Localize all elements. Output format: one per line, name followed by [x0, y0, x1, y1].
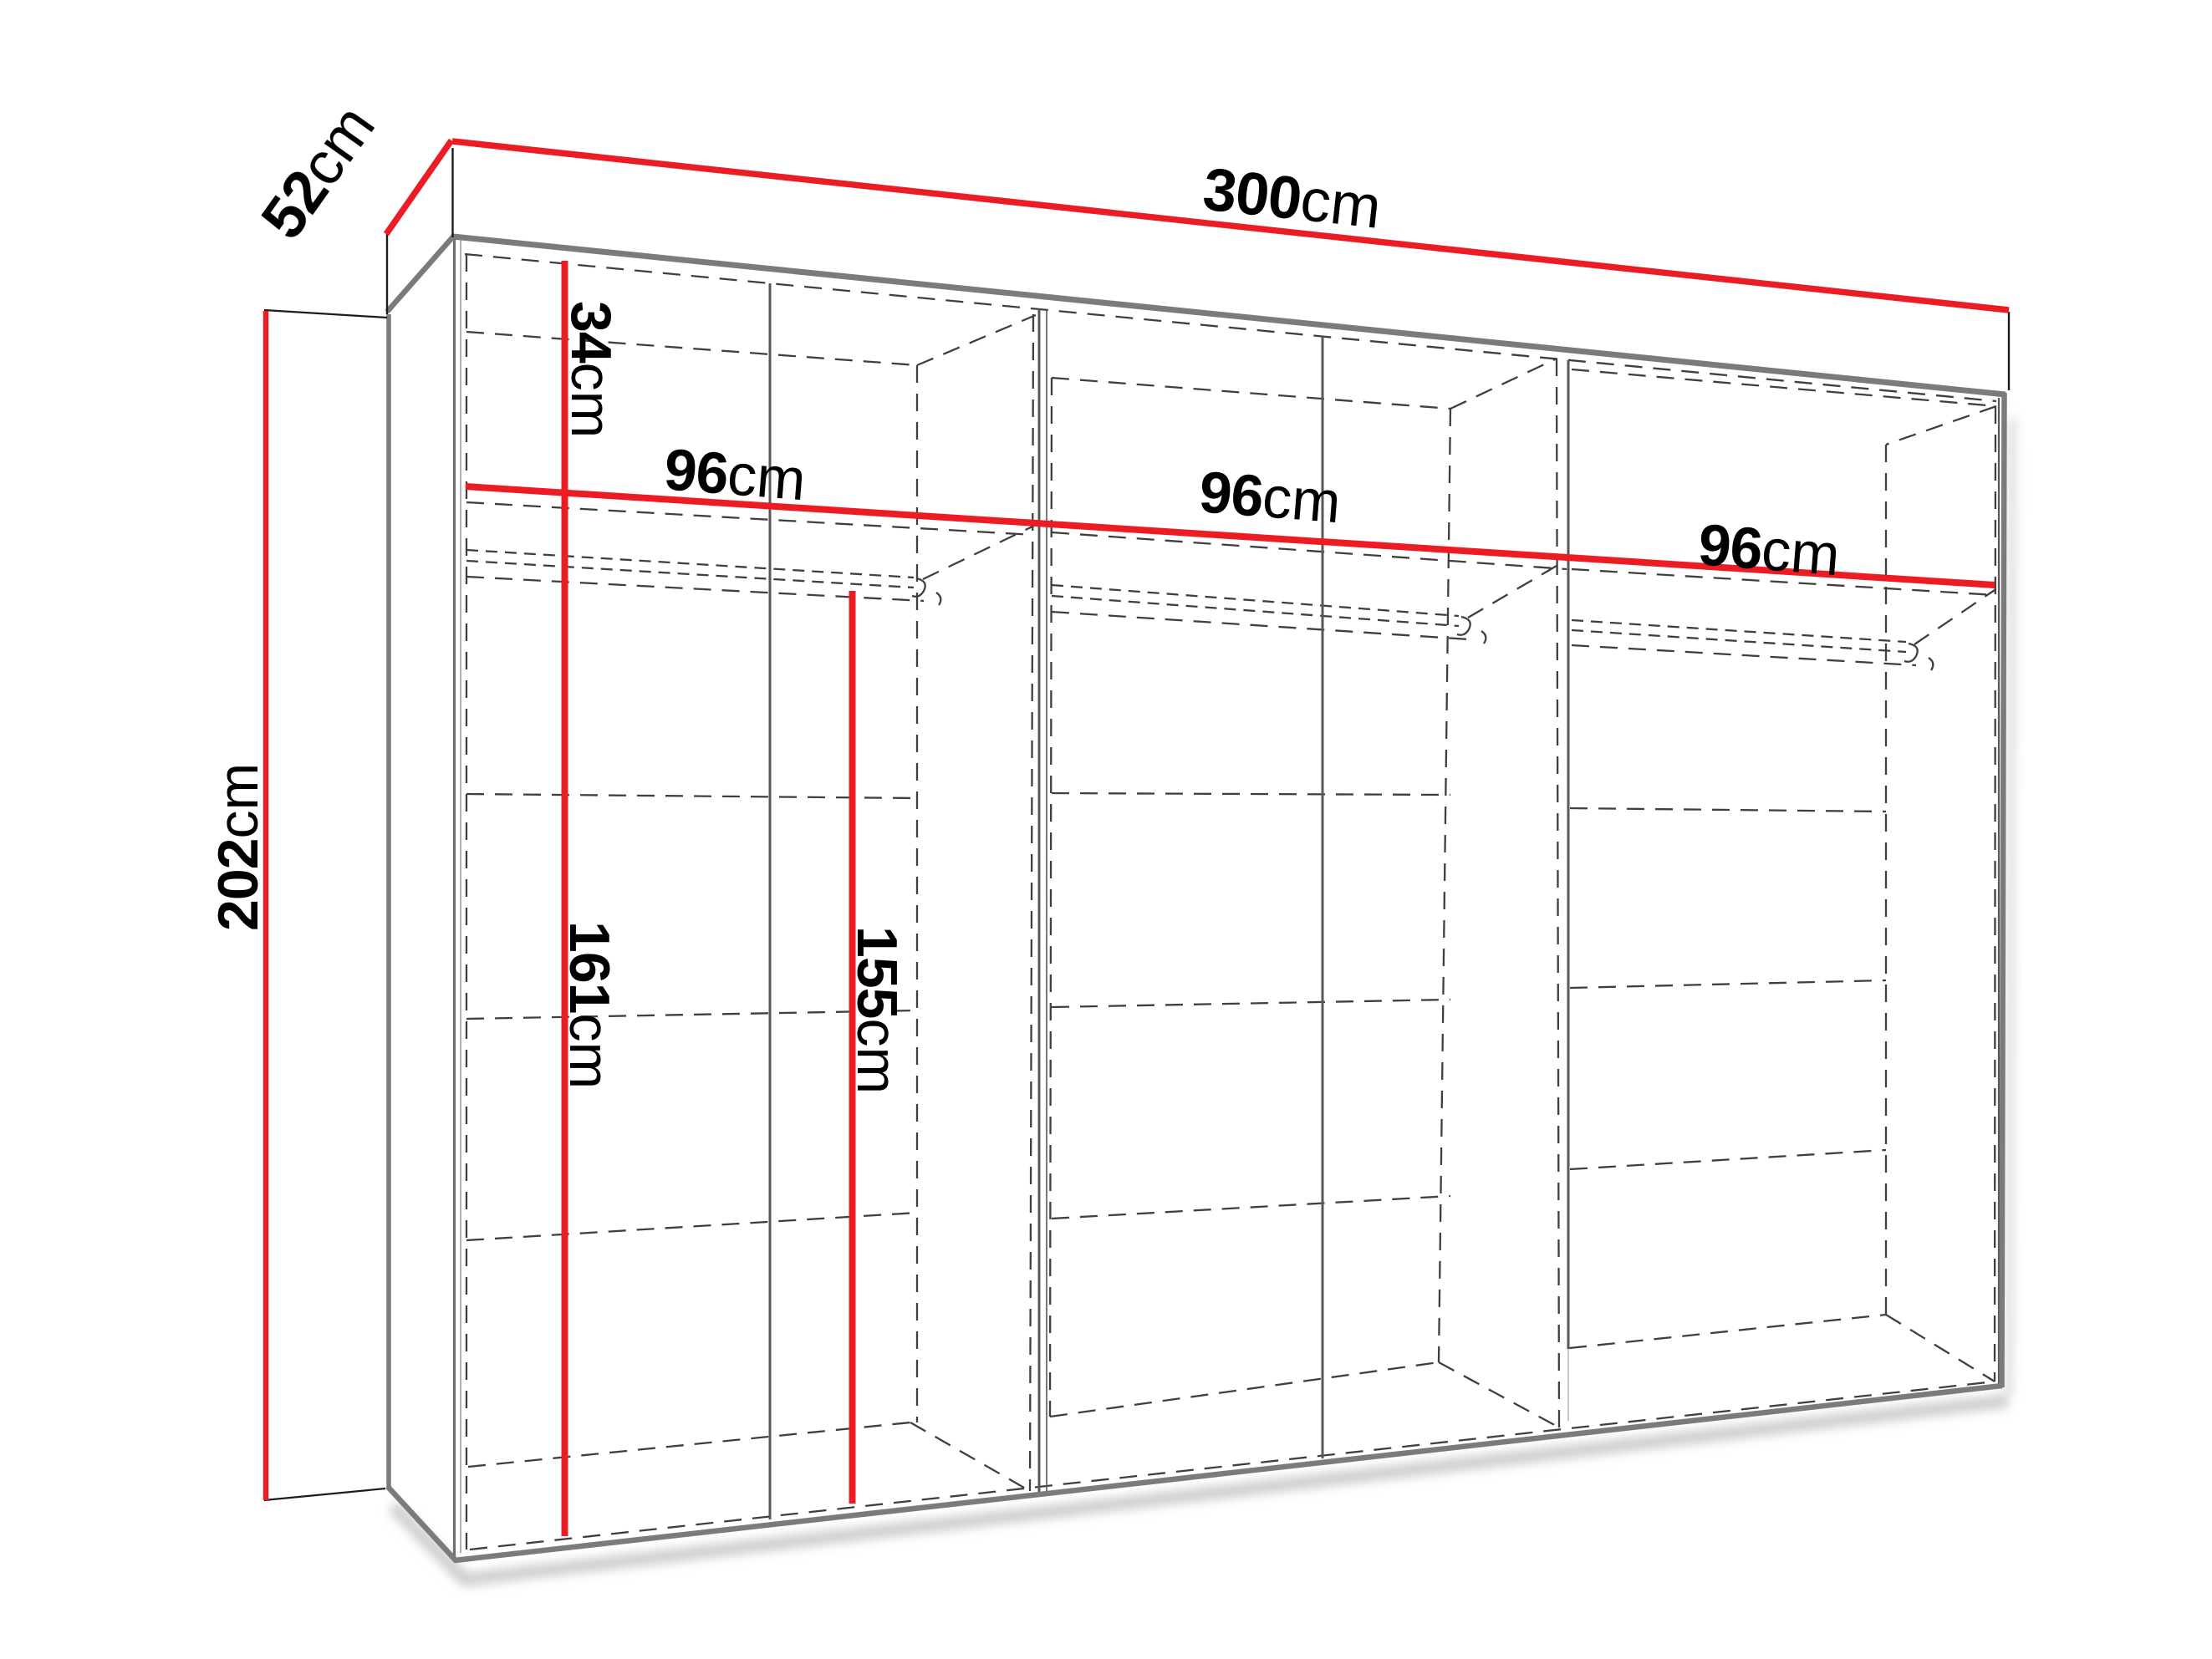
- svg-text:96cm: 96cm: [1197, 459, 1343, 535]
- svg-text:96cm: 96cm: [662, 436, 808, 512]
- svg-text:161cm: 161cm: [558, 921, 621, 1089]
- svg-text:155cm: 155cm: [845, 926, 909, 1094]
- svg-text:202cm: 202cm: [206, 763, 270, 931]
- svg-text:34cm: 34cm: [559, 301, 623, 438]
- svg-text:96cm: 96cm: [1696, 511, 1842, 588]
